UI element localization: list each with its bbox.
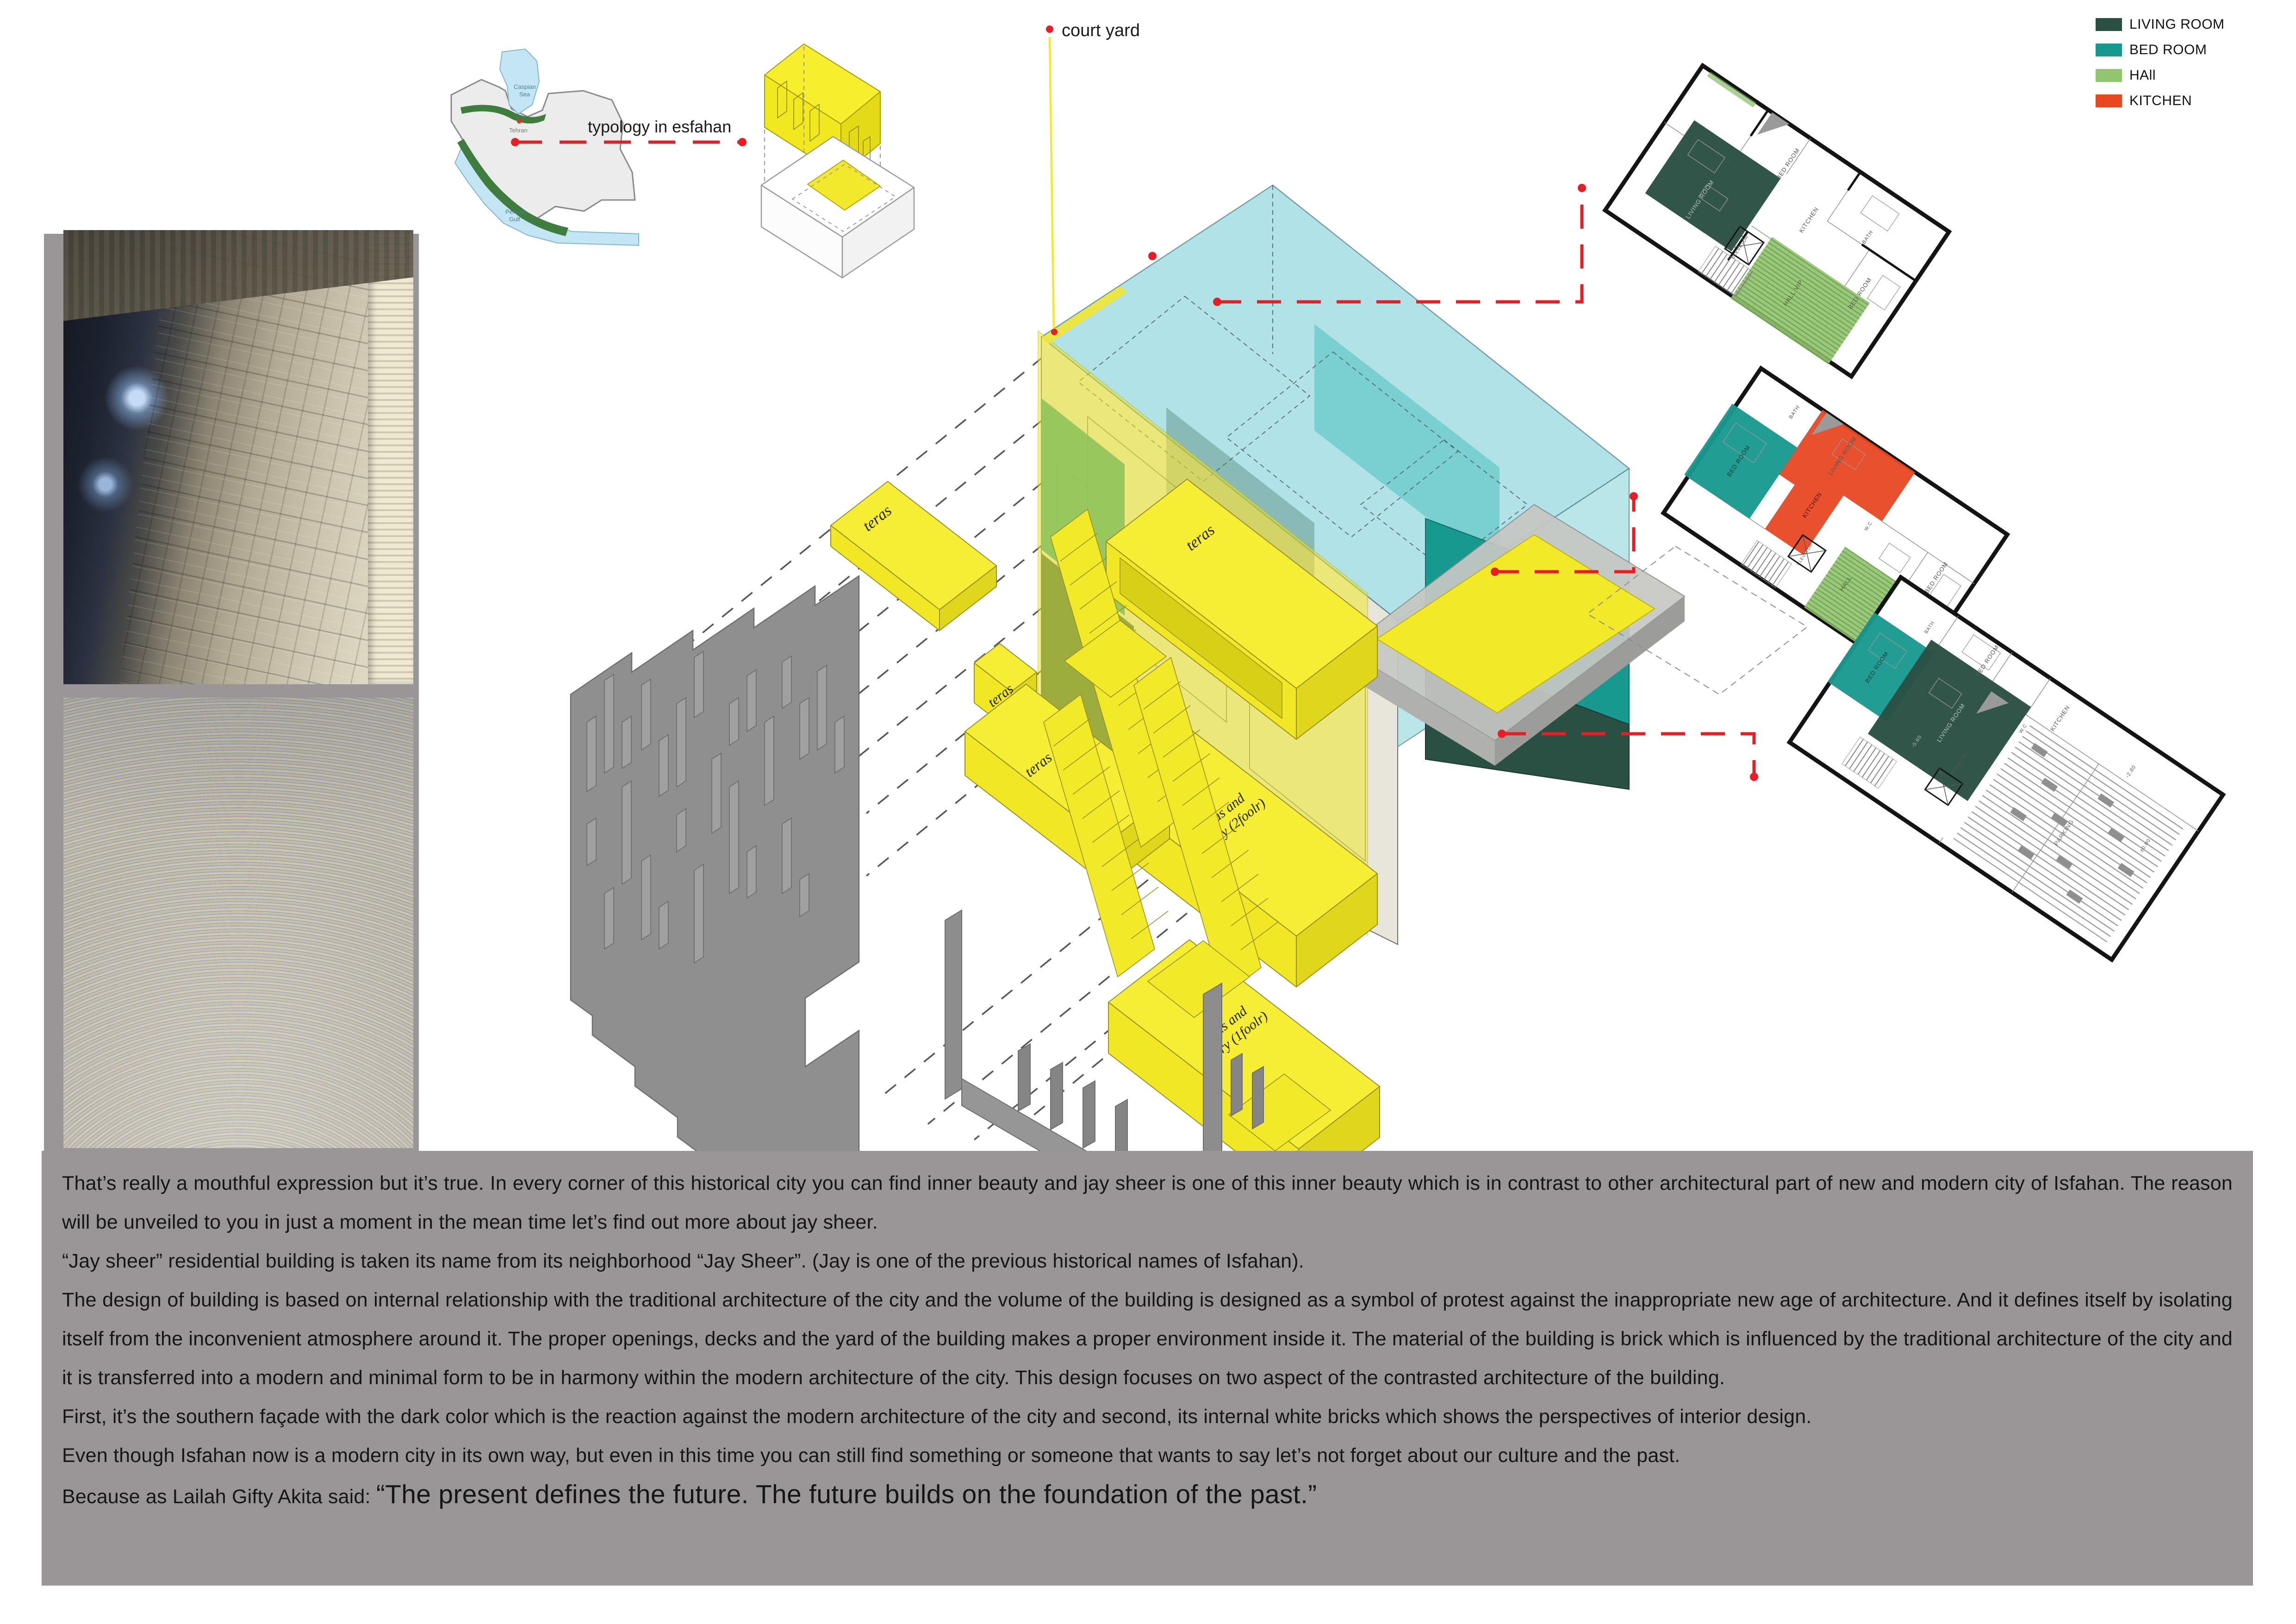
- presentation-board: Caspian Sea Tehran Persian Gulf typology…: [0, 0, 2296, 1624]
- legend-item-living-room: LIVING ROOM: [2096, 18, 2225, 31]
- hall-swatch: [2096, 69, 2122, 82]
- room-color-legend: LIVING ROOM BED ROOM HAll KITCHEN: [2096, 18, 2225, 107]
- legend-item-bed-room: BED ROOM: [2096, 43, 2225, 56]
- brick-dome-photo: [63, 698, 413, 1148]
- paragraph-3: The design of building is based on inter…: [62, 1280, 2233, 1397]
- map-label-caspian: Caspian: [514, 83, 536, 90]
- perforated-facade-wall: [571, 576, 859, 1219]
- paragraph-5: Even though Isfahan now is a modern city…: [62, 1436, 2233, 1475]
- typology-diagram: [761, 44, 914, 278]
- bed-room-swatch: [2096, 44, 2122, 56]
- courtyard-leader-line: [1050, 37, 1054, 330]
- legend-item-kitchen: KITCHEN: [2096, 94, 2225, 107]
- svg-text:Gulf: Gulf: [509, 216, 520, 223]
- kitchen-swatch: [2096, 94, 2122, 107]
- akita-quote: “The present defines the future. The fut…: [376, 1480, 1317, 1509]
- courtyard-label: court yard: [1062, 21, 1140, 40]
- floor-plan-3: BED ROOM KITCHEN LIVING ROOM HALL VIP BA…: [1604, 66, 1949, 379]
- paragraph-quote: Because as Lailah Gifty Akita said: “The…: [62, 1475, 2233, 1516]
- tehran-dot: [517, 119, 522, 124]
- paragraph-2: “Jay sheer” residential building is take…: [62, 1242, 2233, 1280]
- description-text-block: That’s really a mouthful expression but …: [42, 1151, 2253, 1586]
- brick-wall-photo: [63, 230, 413, 684]
- iran-map: Caspian Sea Tehran Persian Gulf: [451, 49, 639, 245]
- map-label-tehran: Tehran: [509, 127, 528, 134]
- paragraph-4: First, it’s the southern façade with the…: [62, 1397, 2233, 1436]
- paragraph-1: That’s really a mouthful expression but …: [62, 1164, 2233, 1242]
- typology-label: typology in esfahan: [588, 117, 731, 136]
- svg-text:Sea: Sea: [519, 91, 530, 98]
- axonometric-model: teras teras teras teras and entry (: [571, 185, 1807, 1235]
- legend-item-hall: HAll: [2096, 69, 2225, 82]
- living-room-swatch: [2096, 18, 2122, 31]
- carved-brick-column: [368, 230, 413, 684]
- map-label-gulf: Persian: [505, 208, 526, 215]
